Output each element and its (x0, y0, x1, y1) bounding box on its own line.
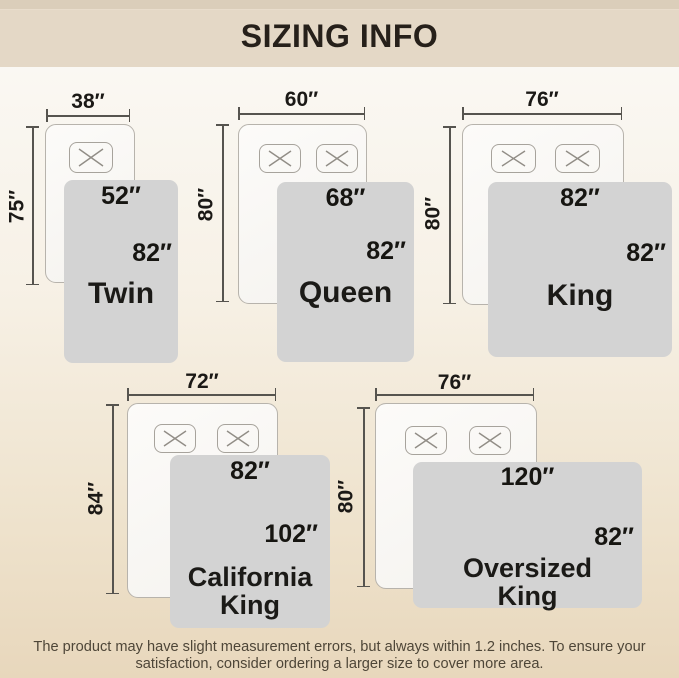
pillow-icon (469, 426, 511, 455)
blanket-length-value: 82″ (626, 241, 666, 266)
pillow-cross-icon (492, 145, 535, 172)
blanket-length-value: 82″ (594, 525, 634, 550)
bed-length-value: 80″ (196, 175, 217, 235)
bed-length-value: 84″ (86, 469, 107, 529)
blanket-length-value: 102″ (264, 522, 318, 547)
blanket: 52″ 82″ Twin (64, 180, 178, 363)
disclaimer-line-1: The product may have slight measurement … (0, 639, 679, 656)
pillow-icon (154, 424, 196, 453)
blanket: 82″ 82″ King (488, 182, 672, 357)
blanket-width-value: 52″ (64, 184, 178, 209)
bed-width-measure-line (462, 107, 622, 120)
blanket-length-value: 82″ (366, 239, 406, 264)
blanket: 120″ 82″ Oversized King (413, 462, 642, 608)
pillow-cross-icon (218, 425, 258, 452)
blanket-width-value: 82″ (170, 459, 330, 484)
pillow-cross-icon (470, 427, 510, 454)
size-name: Twin (64, 278, 178, 310)
blanket-width-value: 68″ (277, 186, 414, 211)
bed-length-measure-line (26, 126, 39, 285)
pillow-cross-icon (317, 145, 357, 172)
blanket-width-value: 120″ (413, 465, 642, 490)
blanket-width-value: 82″ (488, 186, 672, 211)
bed-length-value: 75″ (7, 177, 28, 237)
bed-width-measure-line (46, 109, 130, 122)
bed-length-measure-line (443, 126, 456, 304)
pillow-cross-icon (556, 145, 599, 172)
pillow-icon (69, 142, 113, 173)
sizing-info-infographic: SIZING INFO 38″ 75″ 52″ 82″ Twin 60″ 80″ (0, 0, 679, 678)
size-name: King (488, 280, 672, 312)
bed-width-measure-line (238, 107, 365, 120)
bed-length-measure-line (106, 404, 119, 594)
pillow-icon (405, 426, 447, 455)
bed-length-value: 80″ (336, 467, 357, 527)
size-name: Oversized King (443, 554, 613, 611)
blanket: 68″ 82″ Queen (277, 182, 414, 362)
pillow-cross-icon (70, 143, 112, 172)
pillow-icon (217, 424, 259, 453)
blanket: 82″ 102″ California King (170, 455, 330, 628)
pillow-cross-icon (260, 145, 300, 172)
bed-width-measure-line (375, 388, 534, 401)
blanket-length-value: 82″ (132, 241, 172, 266)
bed-length-value: 80″ (423, 184, 444, 244)
bed-length-measure-line (357, 407, 370, 587)
pillow-icon (491, 144, 536, 173)
size-name: Queen (277, 277, 414, 309)
pillow-icon (316, 144, 358, 173)
disclaimer-line-2: satisfaction, consider ordering a larger… (0, 656, 679, 673)
size-name: California King (165, 563, 335, 620)
bed-length-measure-line (216, 124, 229, 302)
pillow-icon (555, 144, 600, 173)
pillow-icon (259, 144, 301, 173)
pillow-cross-icon (155, 425, 195, 452)
disclaimer-note: The product may have slight measurement … (0, 639, 679, 672)
pillow-cross-icon (406, 427, 446, 454)
bed-width-measure-line (127, 388, 276, 401)
diagram-stage: 38″ 75″ 52″ 82″ Twin 60″ 80″ (0, 0, 679, 678)
